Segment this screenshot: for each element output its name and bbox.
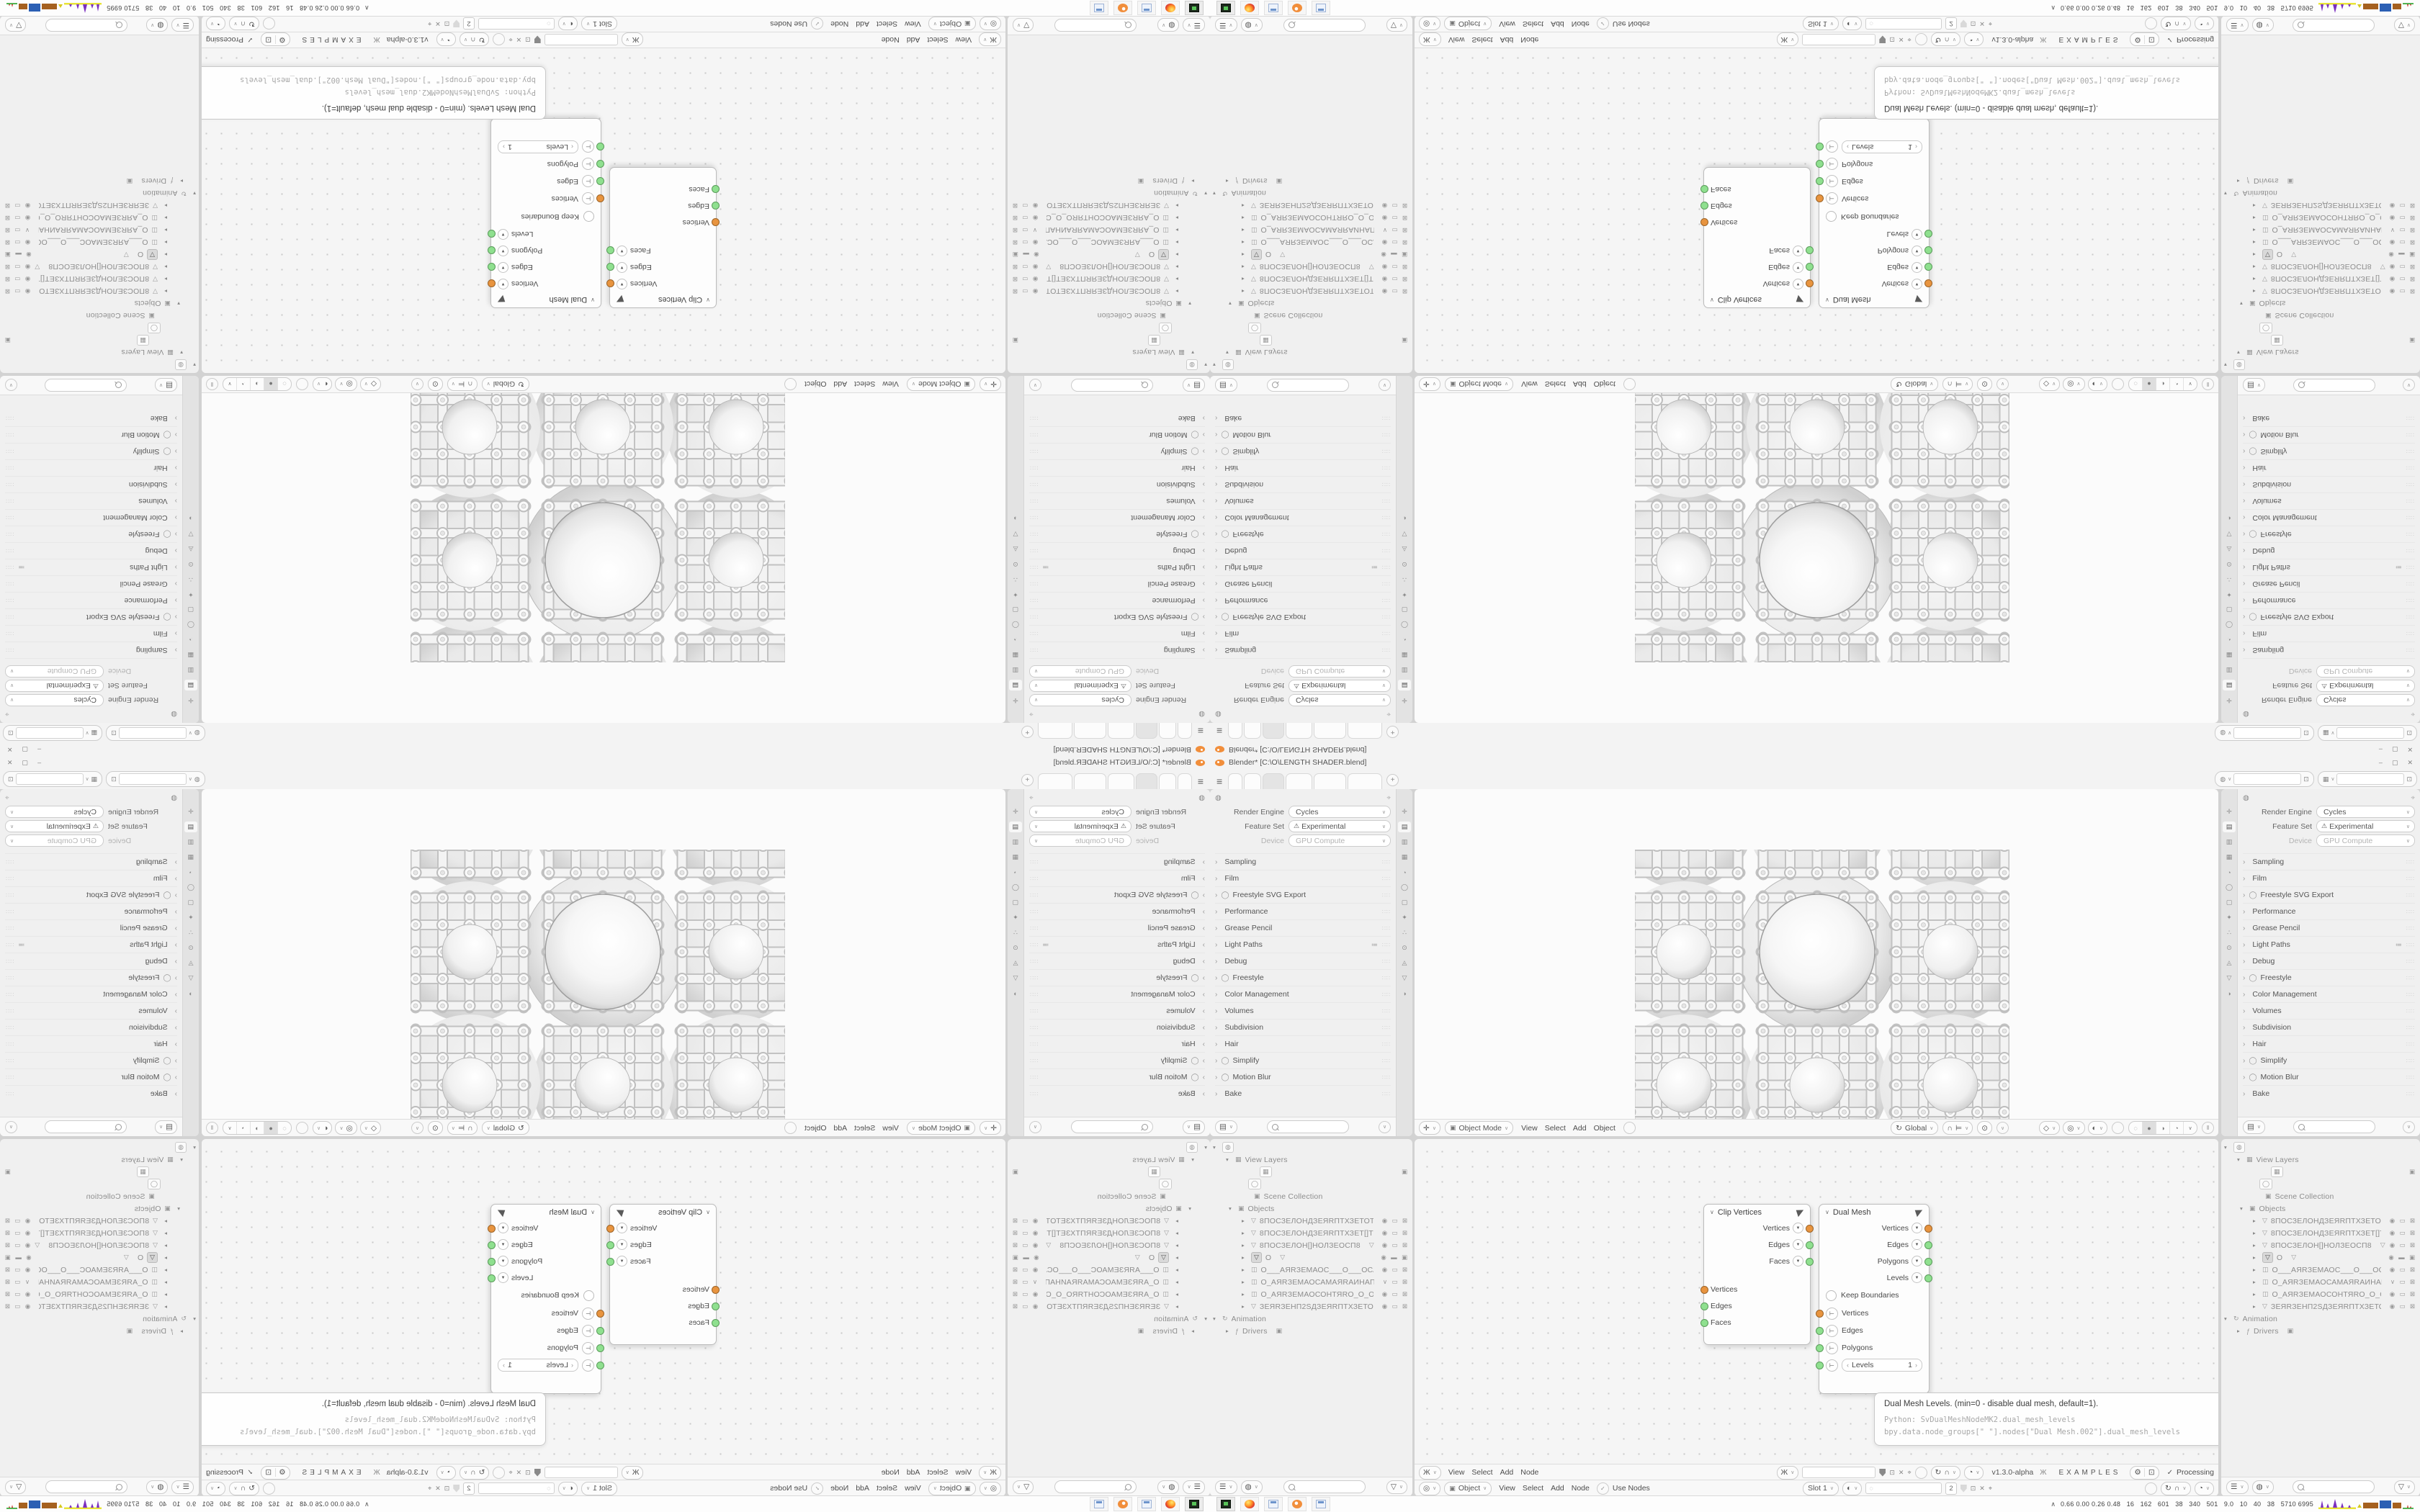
- filter-dropdown[interactable]: ◍∨: [1157, 1480, 1179, 1494]
- snapping-dropdown[interactable]: ∩⊨∨: [1942, 377, 1973, 391]
- expander-icon[interactable]: ▸: [160, 227, 167, 233]
- properties-section[interactable]: › Light Paths ≔ ∷∷: [5, 559, 177, 576]
- particles-icon[interactable]: ∴: [1398, 574, 1411, 585]
- visibility-icons[interactable]: ◉ ▭ ⊠: [1382, 214, 1409, 222]
- properties-section[interactable]: › ◯ Freestyle ∷∷: [5, 526, 177, 543]
- drag-grip-icon[interactable]: ∷∷: [1029, 548, 1038, 554]
- node-clip-vertices[interactable]: ∨Clip Vertices Vertices▼ Edges▼ Faces▼ V…: [1703, 167, 1811, 308]
- shading-dropdown[interactable]: ∨: [223, 378, 237, 390]
- add-workspace-button[interactable]: +: [1386, 774, 1399, 786]
- visibility-icons[interactable]: ◉ ▭ ⊠: [4, 1241, 30, 1249]
- editor-type-dropdown[interactable]: Ж∨: [979, 1466, 1001, 1480]
- socket-menu-button[interactable]: ▼: [498, 246, 508, 256]
- xray-icon[interactable]: ◐∨: [313, 1121, 332, 1135]
- material-type-dropdown[interactable]: ◐∨: [1842, 17, 1862, 31]
- socket-faces-in[interactable]: [1700, 185, 1708, 193]
- expander-icon[interactable]: ▸: [160, 264, 167, 270]
- visibility-icons[interactable]: ▣: [4, 336, 11, 344]
- drag-grip-icon[interactable]: ∷∷: [5, 564, 14, 571]
- calculator-icon[interactable]: [1264, 1, 1283, 15]
- drag-grip-icon[interactable]: ∷∷: [5, 859, 14, 865]
- pin-icon[interactable]: ⌖: [1907, 36, 1911, 44]
- drag-grip-icon[interactable]: ∷∷: [1382, 614, 1391, 621]
- outliner-row[interactable]: ▸ ▽ O ▽ ◉ ▬ ▣: [2221, 248, 2420, 261]
- shading-dropdown[interactable]: ∨: [2183, 1122, 2197, 1134]
- funnel-filter-button[interactable]: ▽∨: [5, 1480, 26, 1494]
- dropdown[interactable]: ⚠ Experimental∨: [1289, 680, 1391, 692]
- drag-grip-icon[interactable]: ∷∷: [1029, 465, 1038, 472]
- render-properties-icon[interactable]: ▤: [1398, 822, 1411, 832]
- options-dropdown[interactable]: ∨: [5, 1121, 17, 1133]
- visibility-icons[interactable]: ◉ ▬ ▣: [4, 1254, 32, 1261]
- xray-icon[interactable]: ◐∨: [2088, 1121, 2107, 1135]
- wireframe-shading-icon[interactable]: ◌: [2129, 1122, 2142, 1134]
- properties-section[interactable]: › Hair ∷∷: [5, 1035, 177, 1052]
- funnel-filter-button[interactable]: ▽∨: [5, 19, 26, 32]
- properties-section[interactable]: › Performance ∷∷: [1215, 903, 1391, 919]
- drag-grip-icon[interactable]: ∷∷: [2406, 1091, 2415, 1097]
- properties-section[interactable]: › Grease Pencil ∷∷: [5, 576, 177, 593]
- expander-icon[interactable]: ▸: [160, 288, 167, 294]
- outliner-row[interactable]: ▣ Scene Collection: [2221, 310, 2420, 322]
- expander-icon[interactable]: ▸: [2253, 1254, 2260, 1261]
- collapse-icon[interactable]: ∨: [1825, 1209, 1829, 1215]
- snapping-dropdown[interactable]: ∩⊨∨: [1942, 1121, 1973, 1135]
- editor-type-dropdown[interactable]: ◎∨: [1419, 17, 1440, 31]
- visibility-icons[interactable]: ◉ ▭ ⊠: [1382, 1302, 1409, 1310]
- close-button[interactable]: ✕: [7, 746, 13, 754]
- properties-section[interactable]: › Film ∷∷: [1215, 626, 1391, 642]
- properties-section[interactable]: › Subdivision ∷∷: [1215, 477, 1391, 493]
- expander-icon[interactable]: ▸: [2253, 202, 2260, 209]
- drag-grip-icon[interactable]: ∷∷: [1029, 581, 1038, 588]
- outliner-row[interactable]: ▸ ▽ 8ПОСЗЕЛОНДЗЕЯRПТХЗЕТОТЗЕ0 ◉ ▭ ⊠: [0, 285, 199, 297]
- drag-grip-icon[interactable]: ∷∷: [5, 432, 14, 438]
- dropdown[interactable]: GPU Compute∨: [1289, 665, 1391, 678]
- outliner-row[interactable]: ▦ ▣: [1210, 1166, 1412, 1178]
- outliner-row[interactable]: ▸ ◫ O_АЯRЗЕМАОСОНТЯRО_O_ОЯRТН ◉ ▭ ⊠: [2221, 1288, 2420, 1300]
- properties-section[interactable]: › Film ∷∷: [1029, 870, 1205, 886]
- expander-icon[interactable]: ▸: [160, 215, 167, 221]
- visibility-icons[interactable]: ◉ ▭ ⊠: [1011, 263, 1038, 271]
- visibility-icons[interactable]: ◉ ▭ ⊠: [2390, 263, 2416, 271]
- outliner-row[interactable]: ▣ Scene Collection: [1210, 1190, 1412, 1202]
- scene-properties-icon[interactable]: ◔: [2223, 634, 2236, 645]
- outliner-row[interactable]: ▾ ▣ Objects: [2221, 1202, 2420, 1215]
- xray-icon[interactable]: ◐∨: [2088, 377, 2107, 391]
- drag-grip-icon[interactable]: ∷∷: [5, 1008, 14, 1014]
- minimize-button[interactable]: –: [37, 759, 41, 767]
- outliner-row[interactable]: ▾ ↻ Animation: [2221, 187, 2420, 199]
- properties-section[interactable]: › ◯ Freestyle SVG Export ∷∷: [1215, 886, 1391, 903]
- scene-name-field[interactable]: [2233, 727, 2301, 739]
- pin-icon[interactable]: ⌖: [508, 1469, 512, 1477]
- workspace-tab[interactable]: [1108, 723, 1134, 739]
- visibility-icons[interactable]: ◉ ▬ ▣: [1381, 1254, 1409, 1261]
- outliner-row[interactable]: ▾ ▦ View Layers: [1008, 1153, 1210, 1166]
- socket-vertices-in[interactable]: [596, 1310, 604, 1318]
- expander-icon[interactable]: ▸: [2253, 1230, 2260, 1236]
- visibility-icons[interactable]: ◉ ▬ ▣: [1011, 1254, 1039, 1261]
- pin-icon[interactable]: ⌖: [1989, 1485, 1992, 1493]
- drag-grip-icon[interactable]: ∷∷: [2406, 1074, 2415, 1081]
- workspace-tab[interactable]: [1244, 723, 1261, 739]
- socket-vertices-in[interactable]: [1700, 1286, 1708, 1294]
- outliner-row[interactable]: ▸ ▽ O ▽ ◉ ▬ ▣: [0, 1251, 199, 1264]
- expander-icon[interactable]: ▾: [1213, 361, 1220, 368]
- preset-icon[interactable]: ≔: [2396, 564, 2402, 572]
- outliner-row[interactable]: ▸ ◫ O_АЯRЗЕМАОСОНТЯRО_O_ОЯRТН ◉ ▭ ⊠: [1008, 1288, 1210, 1300]
- drag-grip-icon[interactable]: ∷∷: [1029, 614, 1038, 621]
- view-layer-properties-icon[interactable]: ▦: [1398, 649, 1411, 660]
- menu-item[interactable]: Select: [854, 380, 875, 389]
- visibility-icons[interactable]: ◉ ▭ ⊠: [1382, 287, 1409, 295]
- drag-grip-icon[interactable]: ∷∷: [1029, 1058, 1038, 1064]
- socket-menu-button[interactable]: ▼: [498, 262, 508, 273]
- expander-icon[interactable]: ▸: [1242, 239, 1249, 246]
- close-button[interactable]: ✕: [2407, 759, 2413, 767]
- section-checkbox[interactable]: ◯: [2249, 448, 2257, 456]
- properties-section[interactable]: › Subdivision ∷∷: [5, 477, 177, 493]
- options-dropdown[interactable]: ∨: [2403, 379, 2415, 392]
- outliner-row[interactable]: ▸ ▽ 8ПОСЗЕЛОН[]НОЛЗЕОСП8 ▽ ◉ ▭ ⊠: [1210, 1239, 1412, 1251]
- expander-icon[interactable]: ▸: [2253, 288, 2260, 294]
- file-manager-icon[interactable]: [1185, 1497, 1204, 1511]
- properties-section[interactable]: › Volumes ∷∷: [1215, 493, 1391, 510]
- menu-item[interactable]: Node: [1572, 1484, 1590, 1493]
- expander-icon[interactable]: ▾: [2237, 1156, 2244, 1163]
- outliner-row[interactable]: ▸ ◫ O_АЯRЗЕМАОСАМАЯRАИНАП_С ∨ ▭ ⊠: [1008, 1276, 1210, 1288]
- calculator-2-icon[interactable]: [1312, 1497, 1330, 1511]
- slot-dropdown[interactable]: Slot 1∨: [581, 1482, 617, 1495]
- drag-grip-icon[interactable]: ∷∷: [2406, 598, 2415, 604]
- properties-section[interactable]: › Color Management ∷∷: [2243, 510, 2415, 526]
- outliner-row[interactable]: ▦ ▣: [2221, 334, 2420, 346]
- render-properties-icon[interactable]: ▤: [1009, 680, 1022, 690]
- mode-dropdown[interactable]: ▣Object Mode∨: [1445, 1121, 1513, 1135]
- menu-item[interactable]: View: [905, 19, 921, 28]
- visibility-icons[interactable]: ∨ ▭ ⊠: [2390, 1278, 2416, 1286]
- outliner-row[interactable]: ▣ Scene Collection: [0, 310, 199, 322]
- expander-icon[interactable]: ▾: [1184, 1205, 1191, 1212]
- view-layer-properties-icon[interactable]: ▦: [2223, 649, 2236, 660]
- socket-vertices-out[interactable]: [1806, 1225, 1814, 1233]
- object-properties-icon[interactable]: ▢: [2223, 604, 2236, 615]
- render-properties-icon[interactable]: ▤: [184, 822, 197, 832]
- properties-section[interactable]: › Film ∷∷: [1215, 870, 1391, 886]
- properties-section[interactable]: › Sampling ∷∷: [2243, 642, 2415, 659]
- tool-icon[interactable]: ✛: [184, 695, 197, 706]
- display-filter-button[interactable]: ▤∨: [1183, 379, 1205, 392]
- filter-dropdown[interactable]: ◍∨: [1241, 1480, 1263, 1494]
- drag-grip-icon[interactable]: ∷∷: [1029, 909, 1038, 915]
- drag-grip-icon[interactable]: ∷∷: [5, 581, 14, 588]
- dropdown[interactable]: ⚠ Experimental∨: [1289, 820, 1391, 832]
- editor-type-dropdown[interactable]: ✛∨: [980, 1121, 1001, 1135]
- visibility-icons[interactable]: ◉ ▭ ⊠: [2390, 287, 2416, 295]
- section-checkbox[interactable]: ◯: [1221, 1074, 1229, 1081]
- properties-section[interactable]: › ◯ Motion Blur ∷∷: [5, 1068, 177, 1085]
- socket-vertices-in[interactable]: [712, 1286, 720, 1294]
- object-data-icon[interactable]: ▽: [2223, 973, 2236, 984]
- properties-section[interactable]: › Film ∷∷: [5, 626, 177, 642]
- output-properties-icon[interactable]: ▥: [1009, 665, 1022, 675]
- drag-grip-icon[interactable]: ∷∷: [1382, 859, 1391, 865]
- editor-type-dropdown[interactable]: ✛∨: [980, 377, 1001, 391]
- visibility-icons[interactable]: ◉ ▭ ⊠: [1011, 1290, 1038, 1298]
- dropdown[interactable]: ⚠ Experimental∨: [1029, 820, 1131, 832]
- outliner-row[interactable]: ◯: [0, 1178, 199, 1190]
- maximize-button[interactable]: ▢: [2392, 759, 2398, 767]
- section-checkbox[interactable]: ◯: [1221, 891, 1229, 899]
- expander-icon[interactable]: ▾: [2224, 1144, 2231, 1151]
- properties-section[interactable]: › ◯ Freestyle ∷∷: [2243, 526, 2415, 543]
- outliner-row[interactable]: ▸ ƒ Drivers ▣: [1210, 175, 1412, 187]
- filter-dropdown[interactable]: ◍∨: [2252, 19, 2274, 32]
- workspace-tab[interactable]: [1286, 773, 1312, 789]
- outliner-row[interactable]: ▾ ↻ Animation: [1008, 1313, 1210, 1325]
- physics-icon[interactable]: ⊙: [1398, 559, 1411, 570]
- snap-controls[interactable]: ↻∩∨: [229, 17, 259, 31]
- properties-section[interactable]: › ◯ Motion Blur ∷∷: [1029, 1068, 1205, 1085]
- outliner-row[interactable]: ▾ ▦ View Layers: [1210, 1153, 1412, 1166]
- visibility-icons[interactable]: ◉ ▭ ⊠: [4, 287, 30, 295]
- overlay-dropdown[interactable]: ◔∨: [2195, 17, 2214, 31]
- drag-grip-icon[interactable]: ∷∷: [5, 647, 14, 654]
- material-icon[interactable]: ◑: [1398, 513, 1411, 524]
- menu-item[interactable]: Select: [927, 1468, 948, 1477]
- socket-edges-out[interactable]: [1924, 263, 1932, 271]
- properties-section[interactable]: › Bake ∷∷: [1029, 410, 1205, 427]
- menu-item[interactable]: Select: [1545, 1124, 1566, 1133]
- outliner-row[interactable]: ▸ ▽ ЗЕЯRЗЕНП2SДЗЕЯRПТХЗЕТОТЗЕ ◉ ▭ ⊠: [1008, 1300, 1210, 1313]
- menu-item[interactable]: Node: [830, 1484, 848, 1493]
- pause-button[interactable]: ‖: [2202, 378, 2214, 390]
- toggle-button[interactable]: [263, 18, 275, 30]
- section-checkbox[interactable]: ◯: [1191, 431, 1198, 439]
- visibility-icons[interactable]: ▣: [2409, 1168, 2416, 1176]
- socket-menu-button[interactable]: ▼: [1912, 1223, 1922, 1233]
- overlays-icon[interactable]: ◎∨: [2063, 377, 2084, 391]
- expander-icon[interactable]: ▾: [2224, 361, 2231, 368]
- copy-icon[interactable]: ⊡: [444, 1485, 450, 1493]
- properties-section[interactable]: › Volumes ∷∷: [5, 493, 177, 510]
- drag-grip-icon[interactable]: ∷∷: [5, 958, 14, 965]
- drag-grip-icon[interactable]: ∷∷: [5, 482, 14, 488]
- expander-icon[interactable]: ▸: [1171, 288, 1178, 294]
- outliner-row[interactable]: ▸ ◫ O___АЯRЗЕМАОС___O___ОСАМЗ ◉ ▭ ⊠: [0, 1264, 199, 1276]
- socket-levels-in[interactable]: [596, 143, 604, 150]
- pause-button[interactable]: ‖: [2202, 1122, 2214, 1134]
- transform-orientation-dropdown[interactable]: ↻Global∨: [482, 1121, 529, 1135]
- funnel-filter-button[interactable]: ▽∨: [1013, 1480, 1034, 1494]
- levels-stepper[interactable]: ‹Levels1›: [1842, 1359, 1922, 1372]
- drag-grip-icon[interactable]: ∷∷: [1029, 515, 1038, 521]
- examples-button[interactable]: EXAMPLES: [2059, 1469, 2121, 1477]
- node-dual-mesh[interactable]: ∨Dual Mesh Vertices▼ Edges▼ Polygons▼ Le…: [490, 118, 601, 308]
- drag-grip-icon[interactable]: ∷∷: [2406, 942, 2415, 948]
- toggle-button[interactable]: [493, 34, 505, 46]
- expander-icon[interactable]: ▸: [1242, 1303, 1249, 1310]
- drag-grip-icon[interactable]: ∷∷: [1382, 909, 1391, 915]
- expander-icon[interactable]: ▸: [1171, 251, 1178, 258]
- drag-grip-icon[interactable]: ∷∷: [5, 531, 14, 538]
- socket-polygons-in[interactable]: [596, 160, 604, 168]
- expander-icon[interactable]: ▾: [1213, 1315, 1220, 1322]
- outliner-row[interactable]: ▣ Scene Collection: [1210, 310, 1412, 322]
- toggle-button[interactable]: [263, 1482, 275, 1495]
- collapse-icon[interactable]: ∨: [1825, 297, 1829, 303]
- visibility-icons[interactable]: ◉ ▭ ⊠: [2390, 1302, 2416, 1310]
- properties-section[interactable]: › Sampling ∷∷: [1215, 642, 1391, 659]
- falloff-dropdown[interactable]: ∨: [1996, 1122, 2009, 1134]
- keep-boundaries-checkbox[interactable]: [583, 212, 594, 222]
- snap-controls[interactable]: ↻∩∨: [2161, 1482, 2190, 1495]
- socket-menu-button[interactable]: ▼: [1793, 1239, 1803, 1250]
- properties-section[interactable]: › Grease Pencil ∷∷: [1029, 576, 1205, 593]
- expander-icon[interactable]: ▾: [2237, 349, 2244, 356]
- outliner-row[interactable]: ▸ ◫ O___АЯRЗЕМАОС___O___ОСАМЗ ◉ ▭ ⊠: [1210, 236, 1412, 248]
- menu-item[interactable]: View: [1521, 380, 1538, 389]
- properties-section[interactable]: › Light Paths ≔ ∷∷: [5, 936, 177, 953]
- visibility-icons[interactable]: ◉ ▭ ⊠: [2390, 238, 2416, 246]
- outliner-row[interactable]: ▸ ◫ O_АЯRЗЕМАОСОНТЯRО_O_ОЯRТН ◉ ▭ ⊠: [2221, 212, 2420, 224]
- view-layer-properties-icon[interactable]: ▦: [1009, 649, 1022, 660]
- properties-section[interactable]: › ◯ Freestyle SVG Export ∷∷: [1029, 886, 1205, 903]
- use-nodes-checkbox[interactable]: ✓: [1597, 18, 1609, 30]
- outliner-row[interactable]: ▸ ƒ Drivers ▣: [1008, 175, 1210, 187]
- drag-grip-icon[interactable]: ∷∷: [2406, 1008, 2415, 1014]
- properties-section[interactable]: › Debug ∷∷: [1215, 953, 1391, 969]
- visibility-icons[interactable]: ◉ ▭ ⊠: [1011, 202, 1038, 210]
- rendered-shading-icon[interactable]: ◔: [237, 378, 251, 390]
- outliner-row[interactable]: ▸ ƒ Drivers ▣: [1008, 1325, 1210, 1337]
- properties-section[interactable]: › Volumes ∷∷: [1215, 1002, 1391, 1019]
- menu-item[interactable]: Select: [927, 35, 948, 44]
- outliner-row[interactable]: ▾ ◍: [1008, 359, 1210, 371]
- material-name-field[interactable]: ◌: [1865, 1482, 1942, 1494]
- node-dual-mesh[interactable]: ∨Dual Mesh Vertices▼ Edges▼ Polygons▼ Le…: [1819, 1204, 1930, 1394]
- drag-grip-icon[interactable]: ∷∷: [5, 1025, 14, 1031]
- dropdown[interactable]: GPU Compute∨: [5, 834, 104, 847]
- editor-type-dropdown[interactable]: Ж∨: [1419, 1466, 1441, 1480]
- physics-icon[interactable]: ⊙: [184, 559, 197, 570]
- visibility-icons[interactable]: ◉ ▭ ⊠: [2390, 1241, 2416, 1249]
- pin-icon[interactable]: ⌖: [428, 20, 431, 28]
- menu-item[interactable]: Node: [882, 1468, 900, 1477]
- display-mode-dropdown[interactable]: ☰∨: [1215, 19, 1237, 32]
- particles-icon[interactable]: ∴: [1009, 927, 1022, 938]
- dropdown[interactable]: GPU Compute∨: [1029, 834, 1131, 847]
- socket-edges-in[interactable]: [596, 1327, 604, 1335]
- dropdown[interactable]: Cycles∨: [2316, 806, 2415, 818]
- preset-icon[interactable]: ≔: [2396, 941, 2402, 949]
- properties-section[interactable]: › Film ∷∷: [2243, 870, 2415, 886]
- expander-icon[interactable]: ▸: [2253, 227, 2260, 233]
- drag-grip-icon[interactable]: ∷∷: [5, 449, 14, 455]
- drag-grip-icon[interactable]: ∷∷: [1029, 1008, 1038, 1014]
- outliner-search-input[interactable]: [2293, 1480, 2375, 1493]
- properties-section[interactable]: › Subdivision ∷∷: [1029, 1019, 1205, 1035]
- properties-section[interactable]: › ◯ Freestyle ∷∷: [1215, 526, 1391, 543]
- outliner-row[interactable]: ▸ ▽ 8ПОСЗЕЛОНДЗЕЯRПТХЗЕТОТЗЕ0 ◉ ▭ ⊠: [1210, 285, 1412, 297]
- scene-properties-icon[interactable]: ◔: [1398, 634, 1411, 645]
- expander-icon[interactable]: ▸: [1171, 202, 1178, 209]
- expander-icon[interactable]: ▾: [176, 349, 183, 356]
- pin-icon[interactable]: ⌖: [1386, 794, 1391, 802]
- expander-icon[interactable]: ▾: [1213, 190, 1220, 197]
- outliner-row[interactable]: ▸ ◫ O___АЯRЗЕМАОС___O___ОСАМЗ ◉ ▭ ⊠: [0, 236, 199, 248]
- properties-section[interactable]: › Color Management ∷∷: [1215, 986, 1391, 1002]
- outliner-row[interactable]: ◯: [1210, 1178, 1412, 1190]
- visibility-icons[interactable]: ◉ ▭ ⊠: [1011, 214, 1038, 222]
- visibility-icons[interactable]: ▣: [1011, 1168, 1018, 1176]
- drag-grip-icon[interactable]: ∷∷: [5, 1074, 14, 1081]
- socket-polygons-out[interactable]: [488, 246, 496, 254]
- drag-grip-icon[interactable]: ∷∷: [1029, 958, 1038, 965]
- sverchok-tools-buttons[interactable]: ⚙⊡: [2130, 1466, 2159, 1480]
- properties-section[interactable]: › Volumes ∷∷: [2243, 493, 2415, 510]
- visibility-icons[interactable]: ◉ ▭ ⊠: [4, 1229, 30, 1237]
- quick-link-button[interactable]: ⊢: [1826, 176, 1838, 188]
- visibility-icons[interactable]: ◉ ▬ ▣: [2388, 1254, 2416, 1261]
- preset-icon[interactable]: ≔: [1042, 941, 1049, 949]
- node-clip-vertices[interactable]: ∨Clip Vertices Vertices▼ Edges▼ Faces▼ V…: [609, 1204, 717, 1345]
- outliner-row[interactable]: ▸ ◫ O___АЯRЗЕМАОС___O___ОСАМЗ ◉ ▭ ⊠: [2221, 1264, 2420, 1276]
- overlay-dropdown[interactable]: ◔∨: [1964, 1466, 1984, 1480]
- expander-icon[interactable]: ▸: [1242, 276, 1249, 282]
- rendered-shading-icon[interactable]: ◔: [237, 1122, 251, 1134]
- scene-properties-icon[interactable]: ◔: [1009, 867, 1022, 878]
- node-clip-vertices[interactable]: ∨Clip Vertices Vertices▼ Edges▼ Faces▼ V…: [609, 167, 717, 308]
- properties-section[interactable]: › Grease Pencil ∷∷: [1215, 919, 1391, 936]
- funnel-filter-button[interactable]: ▽∨: [1013, 19, 1034, 32]
- search-input[interactable]: [1267, 379, 1349, 392]
- properties-section[interactable]: › Bake ∷∷: [2243, 1085, 2415, 1102]
- render-properties-icon[interactable]: ▤: [184, 680, 197, 690]
- socket-menu-button[interactable]: ▼: [1912, 246, 1922, 256]
- expander-icon[interactable]: ▸: [176, 178, 183, 184]
- expander-icon[interactable]: ▸: [160, 239, 167, 246]
- shader-context-dropdown[interactable]: ▣Object∨: [1444, 17, 1492, 31]
- editor-type-dropdown[interactable]: ◎∨: [980, 17, 1001, 31]
- outliner-row[interactable]: ▾ ▦ View Layers: [2221, 1153, 2420, 1166]
- outliner-row[interactable]: ▾ ↻ Animation: [2221, 1313, 2420, 1325]
- quick-link-button[interactable]: ⊢: [582, 158, 594, 171]
- drag-grip-icon[interactable]: ∷∷: [2406, 1058, 2415, 1064]
- modifiers-icon[interactable]: ✦: [184, 589, 197, 600]
- properties-section[interactable]: › Light Paths ≔ ∷∷: [2243, 559, 2415, 576]
- socket-menu-button[interactable]: ▼: [498, 1239, 508, 1250]
- socket-levels-in[interactable]: [1816, 143, 1824, 150]
- visibility-icons[interactable]: ▣: [4, 1168, 11, 1176]
- filter-dropdown[interactable]: ◍∨: [1157, 19, 1179, 32]
- expander-icon[interactable]: ▸: [2237, 178, 2244, 184]
- expander-icon[interactable]: ▸: [1242, 264, 1249, 270]
- blender-icon[interactable]: [1113, 1497, 1132, 1511]
- menu-icon[interactable]: ≡: [1216, 726, 1222, 736]
- snapping-dropdown[interactable]: ∩⊨∨: [447, 1121, 478, 1135]
- socket-menu-button[interactable]: ▼: [617, 279, 627, 289]
- visibility-icons[interactable]: ◉ ▭ ⊠: [2390, 275, 2416, 283]
- drag-grip-icon[interactable]: ∷∷: [5, 465, 14, 472]
- falloff-dropdown[interactable]: ∨: [411, 1122, 423, 1134]
- quick-link-button[interactable]: ⊢: [1826, 158, 1838, 171]
- outliner-row[interactable]: ▸ ◫ O___АЯRЗЕМАОС___O___ОСАМЗ ◉ ▭ ⊠: [1210, 1264, 1412, 1276]
- tool-icon[interactable]: ✛: [184, 806, 197, 817]
- tree-type-dropdown[interactable]: Ж∨: [622, 33, 644, 47]
- socket-vertices-out[interactable]: [488, 279, 496, 287]
